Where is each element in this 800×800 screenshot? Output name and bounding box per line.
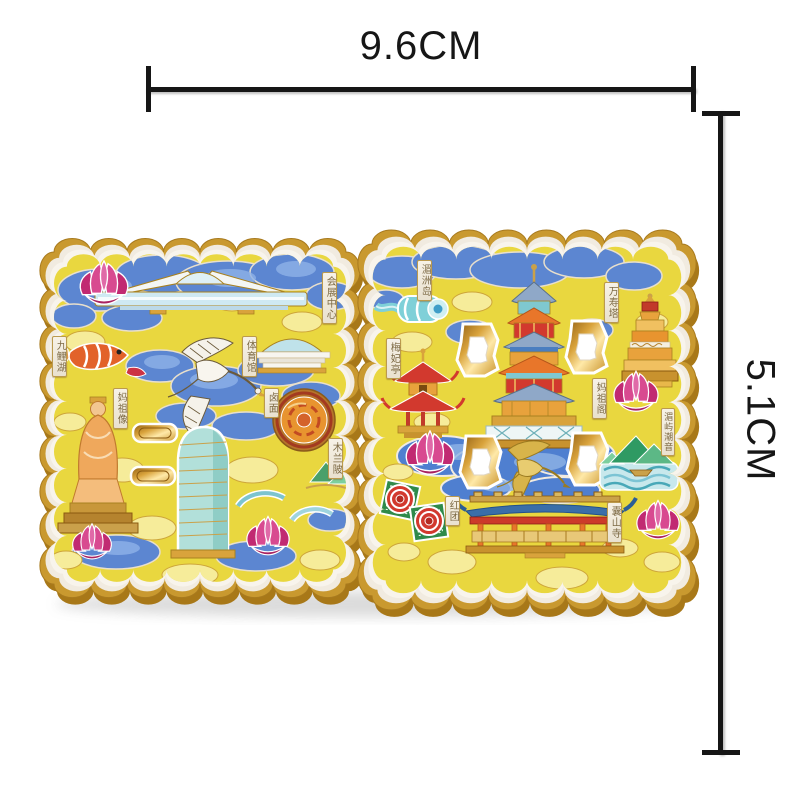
- plaque-meiyu-chaoyin: 湄屿潮音: [661, 408, 675, 456]
- plaque-nangshan-temple: 囊山寺: [607, 502, 622, 543]
- openwork-cutout: [566, 321, 607, 373]
- product-photo: 9.6CM 5.1CM: [0, 0, 800, 800]
- plaque-meizhou-island: 湄洲岛: [417, 260, 432, 301]
- gold-slot-window: [133, 424, 177, 442]
- plaque-mazu-statue: 妈祖像: [113, 388, 128, 429]
- plaque-wanshou-pagoda: 万寿塔: [604, 282, 619, 323]
- plaque-lumian: 卤面: [264, 388, 279, 418]
- plaque-convention-center: 会展中心: [322, 272, 337, 324]
- plaque-gymnasium: 体育馆: [242, 336, 257, 377]
- glass-tower: [171, 427, 235, 558]
- openwork-cutout: [457, 324, 498, 376]
- plaque-hongtuan: 红团: [445, 496, 460, 526]
- noodle-dish: [273, 389, 335, 451]
- gold-slot-window: [131, 467, 175, 485]
- plaque-mulan-weir: 木兰陂: [328, 438, 343, 479]
- openwork-cutout: [460, 436, 501, 488]
- plaque-mazu-pavilion: 妈祖阁: [592, 378, 607, 419]
- plaque-nine-carp-lake: 九鲤湖: [52, 336, 67, 377]
- plaque-meifei-pavilion: 梅妃亭: [386, 338, 401, 379]
